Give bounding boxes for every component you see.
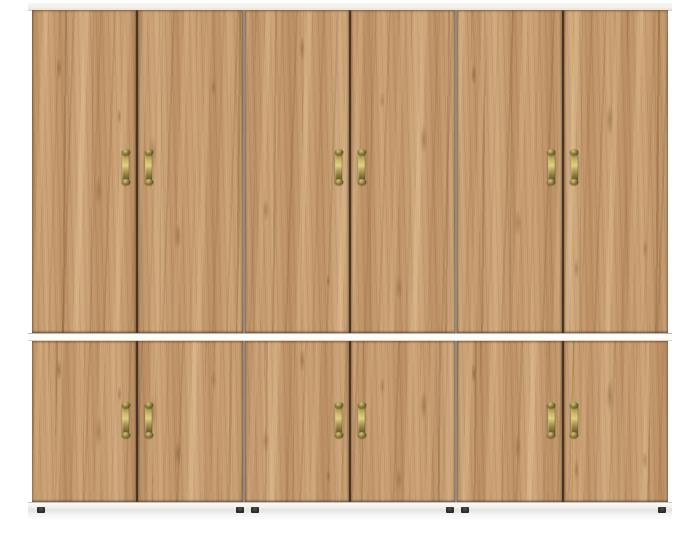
- door-handle-icon: [122, 152, 129, 182]
- wardrobe-unit-upper-3: [457, 10, 668, 333]
- wardrobe-door-lower-2: [138, 341, 242, 502]
- door-handle-icon: [335, 152, 342, 182]
- door-handle-icon: [548, 152, 555, 182]
- wardrobe-foot: [37, 507, 45, 513]
- floor-shadow: [28, 513, 672, 520]
- wardrobe-unit-upper-2: [245, 10, 456, 333]
- wardrobe-door-lower-5: [457, 341, 561, 502]
- wardrobe-door-lower-4: [351, 341, 455, 502]
- wardrobe-door-upper-4: [351, 10, 455, 333]
- wardrobe-product-image: [0, 0, 700, 549]
- wardrobe-unit-lower-2: [245, 341, 456, 502]
- wardrobe-unit-upper-1: [32, 10, 243, 333]
- door-handle-icon: [358, 405, 365, 435]
- wardrobe-unit-lower-3: [457, 341, 668, 502]
- wardrobe-door-upper-5: [457, 10, 561, 333]
- door-handle-icon: [571, 152, 578, 182]
- door-handle-icon: [145, 152, 152, 182]
- wardrobe-door-upper-2: [138, 10, 242, 333]
- wardrobe-door-lower-6: [564, 341, 668, 502]
- door-handle-icon: [548, 405, 555, 435]
- wardrobe-top-panel: [28, 3, 672, 10]
- wardrobe-door-upper-3: [245, 10, 349, 333]
- door-handle-icon: [145, 405, 152, 435]
- wardrobe-foot: [236, 507, 244, 513]
- wardrobe-foot: [251, 507, 259, 513]
- door-handle-icon: [335, 405, 342, 435]
- base-plinth: [28, 502, 672, 513]
- lower-door-section: [32, 341, 668, 502]
- door-handle-icon: [358, 152, 365, 182]
- wardrobe-foot: [658, 507, 666, 513]
- wardrobe-foot: [461, 507, 469, 513]
- wardrobe-unit-lower-1: [32, 341, 243, 502]
- wardrobe-foot: [446, 507, 454, 513]
- door-handle-icon: [122, 405, 129, 435]
- wardrobe-door-upper-6: [564, 10, 668, 333]
- upper-door-section: [32, 10, 668, 333]
- wardrobe-door-lower-3: [245, 341, 349, 502]
- door-handle-icon: [571, 405, 578, 435]
- wardrobe-door-lower-1: [32, 341, 136, 502]
- middle-divider-panel: [28, 333, 672, 341]
- wardrobe: [28, 3, 672, 513]
- wardrobe-door-upper-1: [32, 10, 136, 333]
